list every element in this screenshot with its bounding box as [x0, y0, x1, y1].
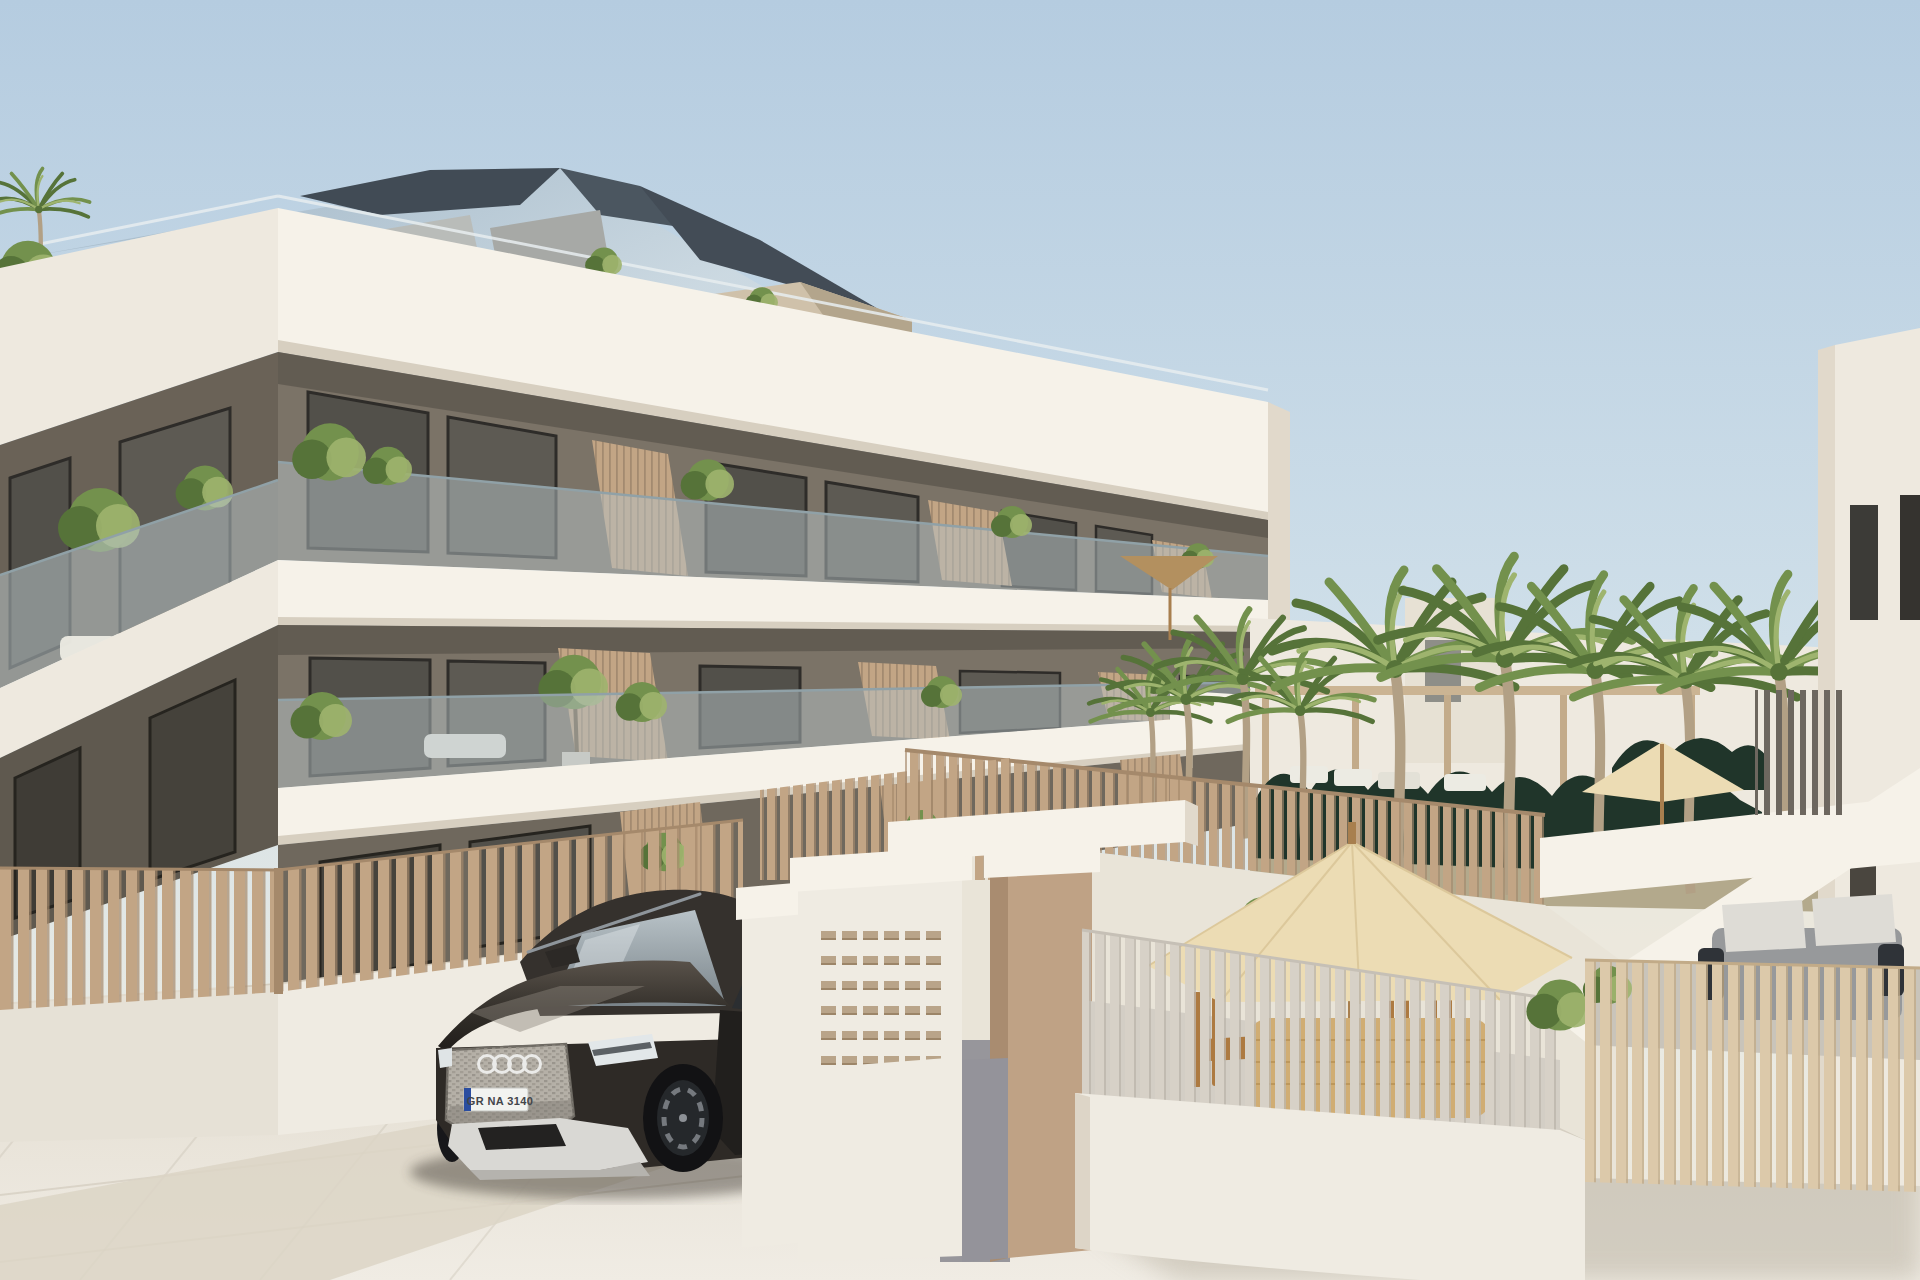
render-stage: GR NA 3140	[0, 0, 1920, 1280]
landing-dark-slat-railing	[1755, 690, 1845, 815]
gate-walkway	[962, 1058, 1008, 1262]
license-plate: GR NA 3140	[464, 1088, 533, 1111]
fence-top-rail	[0, 868, 278, 870]
mailbox-grid	[815, 918, 947, 1068]
car-headlight-left	[438, 1048, 452, 1068]
car-bumper-intake	[478, 1124, 566, 1150]
fence-left-section	[0, 868, 278, 1010]
gate-lintel-side	[1185, 800, 1198, 846]
fence-corner-post	[274, 868, 283, 994]
right-building-window	[1850, 505, 1878, 620]
tan-pillar-cap	[984, 836, 1100, 878]
car-near-wheel	[643, 1064, 723, 1172]
architectural-render: GR NA 3140	[0, 0, 1920, 1280]
plinth-west	[0, 985, 278, 1142]
courtyard-wall-side	[1075, 1093, 1090, 1250]
umbrella-finial	[1348, 822, 1356, 844]
license-plate-text: GR NA 3140	[467, 1095, 534, 1107]
right-slat-fence	[1585, 960, 1920, 1192]
right-building-window	[1900, 495, 1920, 620]
mailbox-wall	[790, 846, 972, 1262]
building-west-face	[0, 208, 278, 940]
